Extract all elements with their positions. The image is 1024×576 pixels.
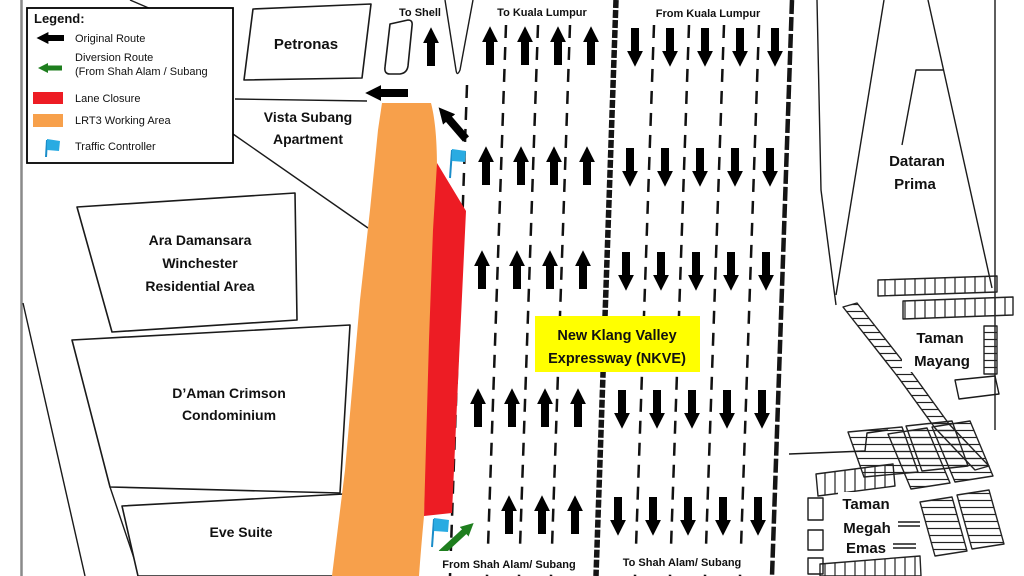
label-from-shah-alam: From Shah Alam/ Subang — [442, 559, 575, 571]
gore-island — [445, 0, 473, 74]
legend-lane-closure: Lane Closure — [75, 93, 140, 105]
legend-traffic-controller: Traffic Controller — [75, 141, 156, 153]
label-nkve-2: Expressway (NKVE) — [548, 351, 686, 367]
legend-original-route: Original Route — [75, 33, 145, 45]
label-ara-2: Winchester — [162, 255, 238, 271]
traffic-diversion-map: Petronas Vista Subang Apartment Ara Dama… — [0, 0, 1024, 576]
ramp-island — [385, 20, 412, 74]
label-from-kl: From Kuala Lumpur — [656, 8, 761, 20]
expressway-right-edge — [772, 0, 792, 576]
label-dataran-1: Dataran — [889, 153, 945, 170]
label-nkve-1: New Klang Valley — [557, 328, 676, 344]
median-line — [596, 0, 616, 576]
label-taman-mayang-1: Taman — [916, 330, 963, 347]
label-daman-1: D’Aman Crimson — [172, 385, 286, 401]
label-ara-3: Residential Area — [145, 278, 254, 294]
label-ara-1: Ara Damansara — [149, 232, 252, 248]
label-vista-subang-2: Apartment — [273, 131, 343, 147]
right-estate — [789, 0, 1013, 576]
label-taman-megah-1: Taman — [842, 496, 889, 513]
traffic-controller-flag-bottom — [432, 518, 449, 547]
label-to-shell: To Shell — [399, 7, 441, 19]
legend-title: Legend: — [34, 11, 85, 26]
legend: Legend: Original Route Diversion Route (… — [27, 8, 233, 163]
lane-closure-swatch — [33, 92, 63, 104]
label-taman-mayang-2: Mayang — [914, 353, 970, 370]
map-canvas: Petronas Vista Subang Apartment Ara Dama… — [0, 0, 1024, 576]
legend-box — [27, 8, 233, 163]
label-taman-megah-3: Emas — [846, 540, 886, 557]
diversion-route-arrow — [441, 530, 466, 553]
label-petronas: Petronas — [274, 36, 338, 53]
label-eve-suite: Eve Suite — [209, 524, 272, 540]
label-daman-2: Condominium — [182, 407, 276, 423]
legend-diversion-route-1: Diversion Route — [75, 52, 153, 64]
label-to-kl: To Kuala Lumpur — [497, 7, 587, 19]
label-taman-megah-2: Megah — [843, 520, 891, 537]
legend-diversion-route-2: (From Shah Alam / Subang — [75, 66, 208, 78]
label-vista-subang-1: Vista Subang — [264, 109, 352, 125]
label-to-shah-alam: To Shah Alam/ Subang — [623, 557, 742, 569]
lrt3-swatch — [33, 114, 63, 127]
legend-lrt3: LRT3 Working Area — [75, 115, 171, 127]
label-dataran-2: Prima — [894, 176, 936, 193]
